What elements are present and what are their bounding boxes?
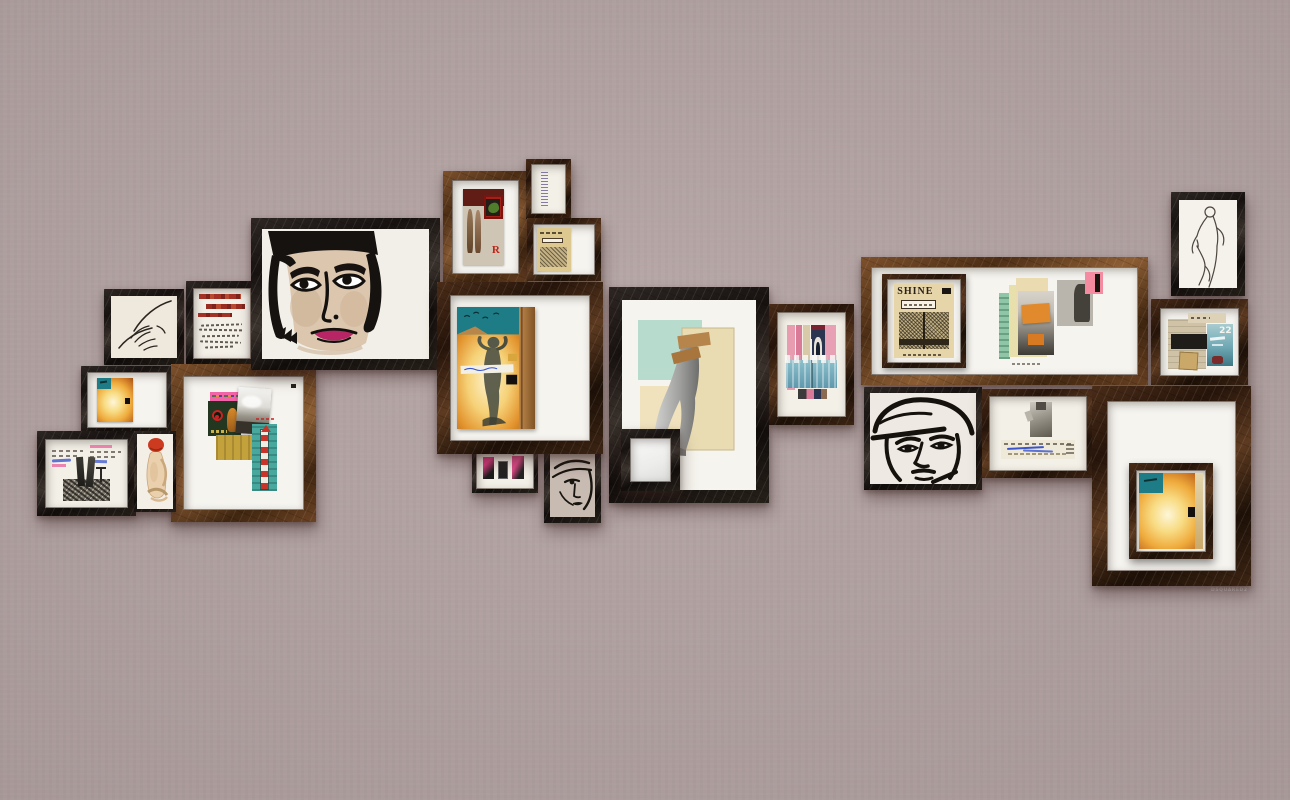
label-box [901, 300, 936, 309]
statue-scribble-art [989, 396, 1087, 471]
frame-standing-figure-collage [437, 282, 603, 454]
frame-hand-sketch [104, 289, 184, 365]
fire-inner-mat [1136, 470, 1206, 552]
ink-scribble [200, 340, 241, 343]
left-collage-art [183, 376, 304, 510]
photo-scrap [483, 457, 494, 479]
two-figures-art: R [452, 180, 519, 274]
frame-bottom-right-large [1092, 386, 1251, 586]
frame-red-text-collage [186, 281, 258, 366]
vertical-card-art [531, 164, 566, 214]
frame-two-figures-collage: R [443, 171, 528, 283]
distressed-lettering [785, 355, 837, 363]
frame-vertical-card [526, 159, 571, 219]
scribble-strip [1001, 440, 1075, 460]
frame-small-mirror [621, 429, 680, 491]
fire-figure-card [457, 307, 535, 430]
hand-sketch-art [111, 296, 177, 358]
fire-paper-art [87, 372, 167, 428]
statue-fire-collage [457, 307, 535, 430]
fire-collage [97, 378, 132, 423]
ink-scribble [205, 346, 235, 349]
frame-legs-text-collage [37, 431, 136, 516]
photo-scrap [512, 456, 524, 479]
nude-sketch-art [1179, 200, 1237, 288]
watermark-caption: DSQUARED2 [1211, 588, 1248, 593]
frame-fire-paper-small [81, 366, 173, 434]
arch-picture [812, 330, 825, 355]
ink-scribble [201, 323, 242, 326]
frame-nude-line-sketch [1171, 192, 1245, 296]
portrait-collage [999, 278, 1106, 362]
teal-22-art: 22 [1160, 308, 1239, 376]
mirror-panel [630, 438, 671, 482]
red-hair-figure-drawing [137, 434, 173, 509]
rocket-panel [252, 424, 277, 491]
frame-pink-blue-collage [769, 304, 854, 425]
frame-woman-face-sketch-small [544, 444, 601, 523]
woman-face-illustration [262, 229, 429, 359]
gallery-wall: R [0, 0, 1290, 800]
letter-r: R [492, 244, 500, 256]
red-text-art [193, 288, 251, 359]
ink-scribble [199, 329, 243, 332]
hand-line-drawing [111, 296, 177, 358]
pink-blue-art [777, 312, 846, 417]
legs-text-art [45, 439, 128, 508]
collage-card: R [463, 189, 505, 264]
kraft-square [1179, 351, 1199, 370]
frame-left-brown-collage [171, 364, 316, 522]
red-caption [256, 418, 275, 420]
figure-silhouette [475, 210, 481, 252]
red-hair-art [137, 434, 173, 509]
sea-photo: 22 [1207, 324, 1232, 366]
pepper-picture [484, 195, 504, 219]
frame-woman-face-portrait [251, 218, 440, 370]
frame-red-hair-figure [134, 431, 176, 512]
standing-figure-art [450, 295, 590, 441]
black-mark [291, 384, 296, 388]
frame-fire-inner [1129, 463, 1213, 559]
red-strip [199, 294, 241, 299]
shine-wide-mat: SHINE [871, 267, 1138, 375]
collage-caption [1012, 363, 1040, 365]
photo-scrap [498, 461, 508, 479]
man-portrait [1018, 291, 1053, 355]
frame-shine-inner: SHINE [882, 274, 966, 368]
number-22: 22 [1219, 326, 1232, 336]
face-sketch-drawing [550, 450, 595, 517]
bottom-scraps [798, 389, 827, 400]
aviator-art [870, 393, 976, 484]
shine-cover-mat: SHINE [887, 279, 961, 363]
shine-title: SHINE [897, 286, 933, 297]
mini-cover [537, 228, 572, 271]
woman-face-art [262, 229, 429, 359]
top-strip [1188, 313, 1226, 323]
shine-cover: SHINE [894, 284, 955, 358]
statue-fragment [1030, 402, 1052, 437]
trouser-leg [76, 457, 85, 486]
handwriting-strip [541, 170, 548, 206]
frame-mini-sheet-music [527, 218, 601, 281]
frame-teal-22-collage: 22 [1151, 299, 1248, 385]
bottom-right-mat [1107, 401, 1236, 571]
face-sketch-art [550, 450, 595, 517]
frame-shine-wide: SHINE [861, 257, 1148, 385]
aviator-drawing [870, 393, 976, 484]
red-strip [198, 313, 233, 317]
fire-collage [1139, 473, 1203, 549]
blue-band [786, 360, 837, 387]
frame-aviator-face [864, 387, 982, 490]
frame-statue-scribble [982, 389, 1094, 478]
title-block [942, 288, 950, 293]
ink-scribble [202, 335, 239, 338]
cover-caption [903, 354, 942, 356]
cover-illustration [899, 312, 950, 349]
red-strip [206, 304, 245, 309]
mini-sheet-art [533, 224, 595, 275]
letter-r-scrap: R [492, 245, 501, 260]
mustard-patch [216, 435, 257, 460]
pink-tag [1085, 272, 1103, 294]
lamp-post-arm [96, 467, 106, 470]
figure-silhouette [467, 209, 473, 253]
nude-sketch-drawing [1179, 200, 1237, 288]
